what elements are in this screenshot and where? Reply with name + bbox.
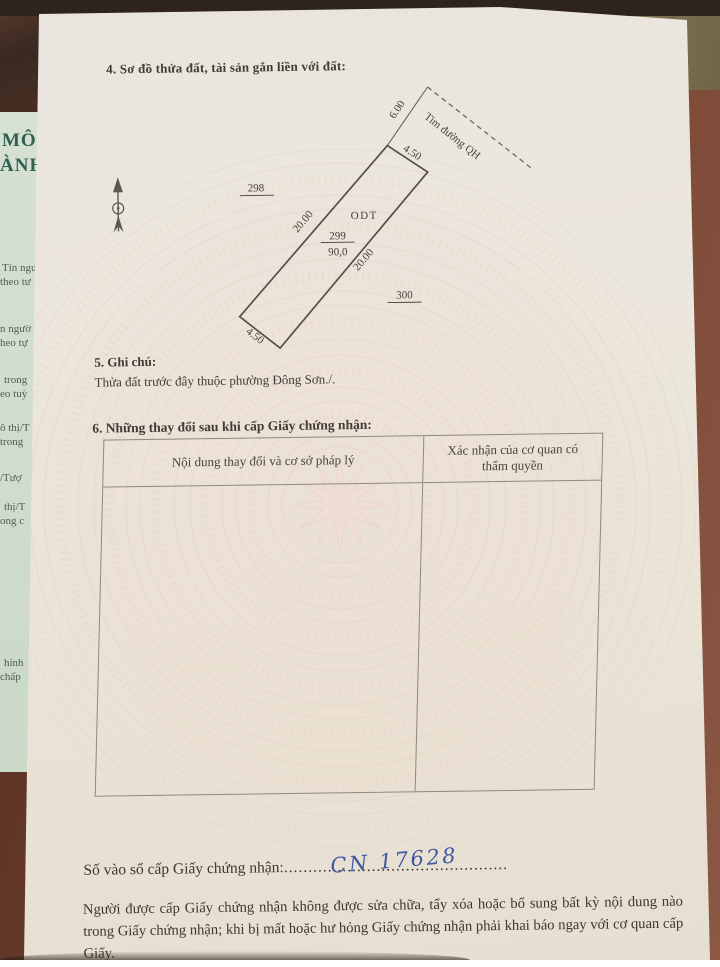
distance-to-road-label: 6.00 (387, 98, 408, 121)
col2-header: Xác nhận của cơ quan có thẩm quyền (423, 434, 602, 484)
road-name-label: Tim đường QH (422, 111, 483, 162)
underpage-text-fragment: chấp (0, 671, 21, 683)
changes-table-col1: Nội dung thay đổi và cơ sở pháp lý (96, 436, 424, 796)
section5-title: 5. Ghi chú: (94, 351, 335, 370)
underpage-text-fragment: trong (0, 436, 23, 448)
section5: 5. Ghi chú: Thửa đất trước đây thuộc phư… (94, 351, 335, 390)
section4-title: 4. Sơ đồ thửa đất, tài sản gắn liền với … (106, 58, 346, 77)
underpage-text-fragment: /Tượ (0, 472, 22, 484)
adjacent-plot-upper-label: 298 (248, 182, 265, 194)
underpage-text-fragment: Tín ngư (2, 262, 37, 274)
plot-width-top-label: 4.50 (401, 142, 424, 163)
underpage-text-fragment: trong (4, 374, 27, 386)
plot-length-left-label: 20.00 (291, 208, 317, 235)
underpage-text-fragment: theo tư (0, 276, 31, 288)
registry-number-line: Số vào sổ cấp Giấy chứng nhận:..........… (83, 854, 643, 880)
underpage-text-fragment: hính (4, 657, 24, 669)
plot-area-label: 90,0 (328, 246, 348, 258)
plot-diagram: 6.00 Tim đường QH 4.50 298 20.00 ODT 299… (79, 75, 553, 367)
adjacent-plot-lower-label: 300 (396, 289, 413, 301)
changes-table-col2: Xác nhận của cơ quan có thẩm quyền (415, 434, 602, 792)
underpage-text-fragment: ong c (0, 515, 24, 527)
underpage-text-fragment: n ngườ (0, 323, 31, 335)
underpage-text-fragment: eo tuỳ (0, 388, 27, 400)
photo-backdrop: MÔI ÀNH) Tín ngư theo tư n ngườ heo tự t… (0, 0, 720, 960)
plot-length-right-label: 20.00 (351, 246, 377, 273)
section6-title: 6. Những thay đổi sau khi cấp Giấy chứng… (92, 417, 372, 437)
north-arrow-icon (112, 177, 124, 232)
registry-label: Số vào sổ cấp Giấy chứng nhận: (83, 859, 284, 879)
plot-width-bottom-label: 4.50 (244, 325, 267, 346)
underpage-text-fragment: thị/T (4, 501, 25, 513)
underpage-text-fragment: heo tự (0, 337, 28, 349)
plot-number-label: 299 (329, 230, 346, 242)
underpage-text-fragment: ô thị/T (0, 422, 30, 434)
land-use-code-label: ODT (351, 210, 378, 222)
section5-note: Thửa đất trước đây thuộc phường Đông Sơn… (95, 371, 336, 390)
changes-table: Nội dung thay đổi và cơ sở pháp lý Xác n… (95, 433, 604, 797)
certificate-page: 4. Sơ đồ thửa đất, tài sản gắn liền với … (0, 0, 720, 960)
col1-header: Nội dung thay đổi và cơ sở pháp lý (103, 436, 423, 487)
certificate-content: 4. Sơ đồ thửa đất, tài sản gắn liền với … (0, 0, 720, 965)
